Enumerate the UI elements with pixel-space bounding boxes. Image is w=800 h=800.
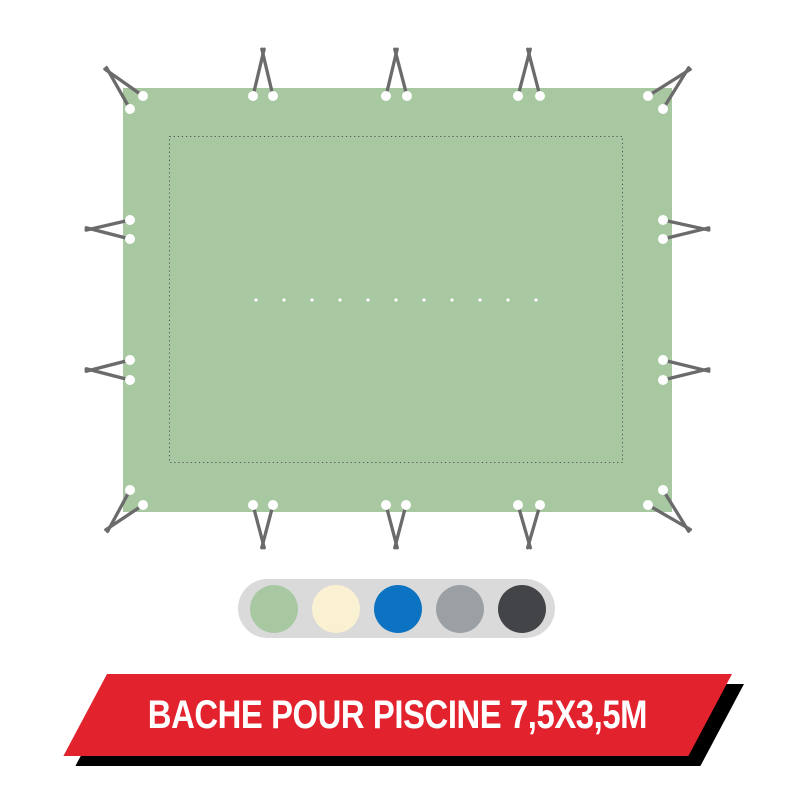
center-fold-dot xyxy=(395,299,398,302)
product-banner: BACHE POUR PISCINE 7,5X3,5M xyxy=(107,674,732,756)
eyelet-top-left-pair xyxy=(248,91,258,101)
eyelet-bottom-right-pair xyxy=(513,500,523,510)
eyelet-bottom-center-pair xyxy=(381,500,391,510)
center-fold-dot xyxy=(283,299,286,302)
eyelet-bottom-right-pair xyxy=(535,500,545,510)
eyelet-bottom-left-pair xyxy=(268,500,278,510)
banner-title-text: BACHE POUR PISCINE 7,5X3,5M xyxy=(148,693,647,738)
color-swatch-cream[interactable] xyxy=(312,585,360,633)
color-swatch-bar xyxy=(238,579,555,638)
eyelet-top-right-pair xyxy=(513,91,523,101)
color-swatch-sage-green[interactable] xyxy=(250,585,298,633)
eyelet-top-left-pair xyxy=(268,91,278,101)
center-fold-dot xyxy=(535,299,538,302)
eyelet-top-right-pair xyxy=(535,91,545,101)
eyelet-right-upper-pair xyxy=(658,215,668,225)
center-fold-dot xyxy=(479,299,482,302)
banner-title: BACHE POUR PISCINE 7,5X3,5M xyxy=(85,674,710,756)
center-fold-dot xyxy=(507,299,510,302)
eyelet-right-lower-pair xyxy=(658,375,668,385)
eyelet-top-center-pair xyxy=(402,91,412,101)
eyelet-right-lower-pair xyxy=(658,355,668,365)
eyelet-top-center-pair xyxy=(381,91,391,101)
color-swatch-gray[interactable] xyxy=(436,585,484,633)
eyelet-bottom-left-pair xyxy=(248,500,258,510)
center-fold-dot xyxy=(255,299,258,302)
eyelet-left-upper-pair xyxy=(125,234,135,244)
eyelet-bottom-center-pair xyxy=(401,500,411,510)
color-swatch-charcoal[interactable] xyxy=(498,585,546,633)
eyelet-corner-bottom-right xyxy=(658,485,668,495)
eyelet-right-upper-pair xyxy=(658,234,668,244)
eyelet-corner-top-right xyxy=(658,104,668,114)
tarp-diagram xyxy=(0,0,800,570)
eyelet-corner-bottom-right xyxy=(643,500,653,510)
eyelet-corner-top-left xyxy=(138,91,148,101)
color-swatch-blue[interactable] xyxy=(374,585,422,633)
eyelet-left-lower-pair xyxy=(125,375,135,385)
eyelet-left-upper-pair xyxy=(125,215,135,225)
eyelet-corner-top-left xyxy=(125,104,135,114)
eyelet-corner-bottom-left xyxy=(138,500,148,510)
eyelet-corner-bottom-left xyxy=(125,485,135,495)
eyelet-left-lower-pair xyxy=(125,355,135,365)
center-fold-dot xyxy=(451,299,454,302)
center-fold-dot xyxy=(423,299,426,302)
center-fold-dot xyxy=(339,299,342,302)
center-fold-dot xyxy=(367,299,370,302)
product-image-canvas: BACHE POUR PISCINE 7,5X3,5M xyxy=(0,0,800,800)
page: { "banner": { "label": "BACHE POUR PISCI… xyxy=(0,0,800,800)
center-fold-dot xyxy=(311,299,314,302)
eyelet-corner-top-right xyxy=(643,91,653,101)
